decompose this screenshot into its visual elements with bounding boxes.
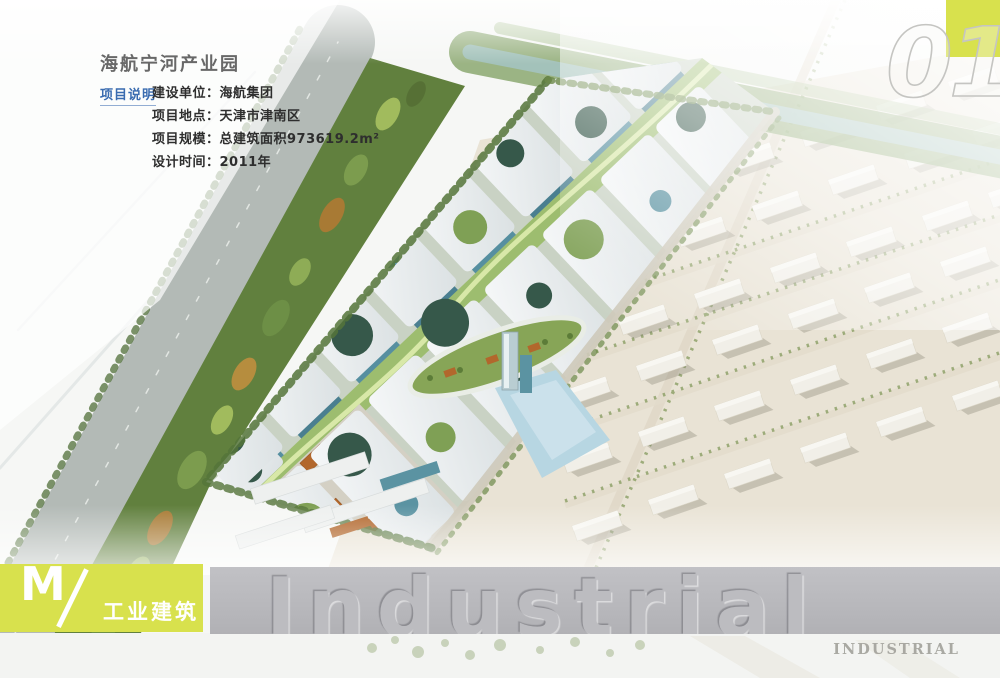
banner-letter: M bbox=[20, 561, 66, 607]
section-label: 项目说明 bbox=[100, 84, 156, 106]
category-label: 工业建筑 bbox=[103, 596, 199, 626]
info-row-scale: 项目规模：总建筑面积973619.2m² bbox=[152, 130, 380, 153]
watermark-band: Industrial bbox=[210, 567, 1000, 634]
info-row-date: 设计时间：2011年 bbox=[152, 153, 380, 176]
project-info: 建设单位：海航集团 项目地点：天津市津南区 项目规模：总建筑面积973619.2… bbox=[152, 84, 380, 176]
page-number-block: 01 bbox=[886, 0, 1000, 119]
category-banner: M 工业建筑 bbox=[0, 564, 203, 632]
page-number: 01 bbox=[886, 7, 1000, 119]
page-title: 海航宁河产业园 bbox=[100, 50, 240, 76]
info-row-client: 建设单位：海航集团 bbox=[152, 84, 380, 107]
page: 01 海航宁河产业园 项目说明 建设单位：海航集团 项目地点：天津市津南区 项目… bbox=[0, 0, 1000, 678]
industrial-stamp: INDUSTRIAL bbox=[833, 641, 960, 658]
watermark-text: Industrial bbox=[266, 567, 821, 634]
info-row-location: 项目地点：天津市津南区 bbox=[152, 107, 380, 130]
